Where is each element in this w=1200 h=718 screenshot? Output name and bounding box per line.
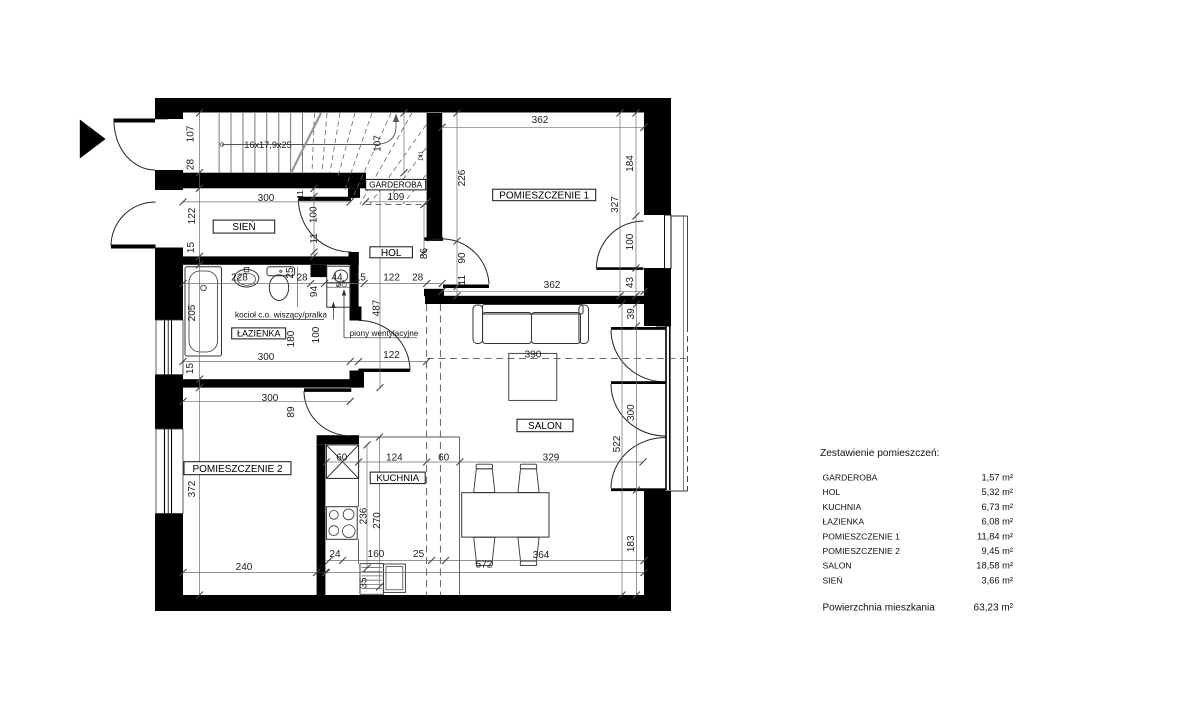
svg-text:11: 11 (309, 233, 320, 244)
svg-text:236: 236 (359, 507, 370, 524)
svg-text:122: 122 (187, 207, 198, 224)
svg-text:SALON: SALON (823, 561, 852, 571)
svg-text:SIEŃ: SIEŃ (232, 220, 255, 233)
svg-text:60: 60 (438, 453, 450, 464)
svg-text:89: 89 (286, 406, 297, 418)
svg-text:107: 107 (373, 135, 384, 152)
svg-text:180: 180 (286, 330, 297, 347)
svg-text:HOL: HOL (381, 248, 402, 259)
svg-text:141: 141 (419, 150, 425, 161)
svg-text:KUCHNIA: KUCHNIA (823, 502, 862, 512)
svg-text:364: 364 (533, 550, 550, 561)
svg-text:1,57 m²: 1,57 m² (981, 473, 1013, 483)
svg-text:28: 28 (412, 273, 424, 284)
svg-text:270: 270 (372, 512, 383, 529)
svg-text:18,58 m²: 18,58 m² (976, 561, 1013, 571)
svg-text:15: 15 (185, 363, 196, 375)
svg-text:16x17,9x25: 16x17,9x25 (244, 140, 292, 150)
svg-text:44: 44 (331, 273, 343, 284)
svg-text:GARDEROBA: GARDEROBA (823, 473, 878, 483)
svg-text:GARDEROBA: GARDEROBA (369, 180, 422, 190)
svg-text:86: 86 (419, 248, 430, 260)
svg-text:160: 160 (368, 549, 385, 560)
svg-text:329: 329 (543, 453, 560, 464)
svg-text:15: 15 (316, 564, 327, 576)
svg-text:5,32 m²: 5,32 m² (981, 487, 1013, 497)
svg-text:28: 28 (186, 159, 197, 171)
svg-text:kocioł c.o. wiszący/pralka: kocioł c.o. wiszący/pralka (235, 311, 327, 320)
svg-text:107: 107 (186, 125, 197, 142)
svg-text:226: 226 (457, 169, 468, 186)
svg-text:POMIESZCZENIE 1: POMIESZCZENIE 1 (499, 191, 589, 202)
svg-text:43: 43 (625, 277, 636, 289)
svg-text:362: 362 (532, 115, 549, 126)
svg-text:POMIESZCZENIE 2: POMIESZCZENIE 2 (823, 546, 901, 556)
svg-text:183: 183 (626, 535, 637, 552)
svg-text:KUCHNIA: KUCHNIA (376, 473, 419, 484)
svg-text:390: 390 (525, 350, 542, 361)
svg-text:100: 100 (625, 233, 636, 250)
svg-text:122: 122 (383, 350, 400, 361)
svg-text:100: 100 (309, 206, 320, 223)
svg-text:572: 572 (476, 560, 493, 571)
svg-text:25: 25 (285, 267, 296, 279)
svg-text:Powierzchnia mieszkania: Powierzchnia mieszkania (823, 602, 936, 613)
svg-text:11,84 m²: 11,84 m² (977, 531, 1013, 541)
svg-text:122: 122 (383, 273, 400, 284)
svg-text:15: 15 (186, 242, 197, 254)
svg-text:Zestawienie pomieszczeń:: Zestawienie pomieszczeń: (820, 448, 939, 459)
svg-text:60: 60 (336, 453, 348, 464)
svg-text:100: 100 (311, 326, 322, 343)
svg-text:124: 124 (386, 453, 403, 464)
svg-text:90: 90 (457, 252, 468, 264)
svg-text:24: 24 (329, 549, 341, 560)
svg-text:6,08 m²: 6,08 m² (981, 517, 1013, 527)
svg-text:300: 300 (258, 352, 275, 363)
svg-text:184: 184 (625, 155, 636, 172)
svg-text:372: 372 (187, 480, 198, 497)
svg-text:35: 35 (359, 577, 370, 589)
svg-text:HOL: HOL (823, 487, 841, 497)
svg-text:362: 362 (544, 280, 561, 291)
svg-text:25: 25 (413, 549, 425, 560)
svg-text:205: 205 (187, 304, 198, 321)
svg-text:3,66 m²: 3,66 m² (981, 575, 1013, 585)
svg-text:SIEŃ: SIEŃ (823, 575, 843, 585)
svg-text:ŁAZIENKA: ŁAZIENKA (237, 329, 281, 339)
svg-text:15: 15 (355, 273, 367, 284)
svg-text:11: 11 (295, 190, 305, 199)
svg-text:11: 11 (457, 274, 468, 285)
svg-text:piony wentylacyjne: piony wentylacyjne (350, 329, 419, 338)
svg-text:300: 300 (262, 393, 279, 404)
svg-text:ŁAZIENKA: ŁAZIENKA (823, 517, 865, 527)
svg-text:487: 487 (372, 299, 383, 316)
svg-text:6,73 m²: 6,73 m² (981, 502, 1013, 512)
svg-text:POMIESZCZENIE 1: POMIESZCZENIE 1 (823, 531, 901, 541)
svg-text:POMIESZCZENIE 2: POMIESZCZENIE 2 (192, 464, 282, 475)
svg-text:240: 240 (236, 562, 253, 573)
svg-text:300: 300 (258, 193, 275, 204)
svg-text:228: 228 (231, 273, 248, 284)
svg-text:39: 39 (626, 308, 637, 320)
svg-text:327: 327 (610, 196, 621, 213)
svg-text:300: 300 (626, 404, 637, 421)
svg-text:522: 522 (612, 435, 623, 452)
svg-text:9,45 m²: 9,45 m² (981, 546, 1013, 556)
svg-text:28: 28 (296, 273, 308, 284)
svg-text:94: 94 (309, 286, 320, 298)
svg-text:63,23 m²: 63,23 m² (974, 602, 1014, 613)
svg-text:SALON: SALON (528, 421, 562, 432)
svg-text:109: 109 (388, 192, 405, 203)
